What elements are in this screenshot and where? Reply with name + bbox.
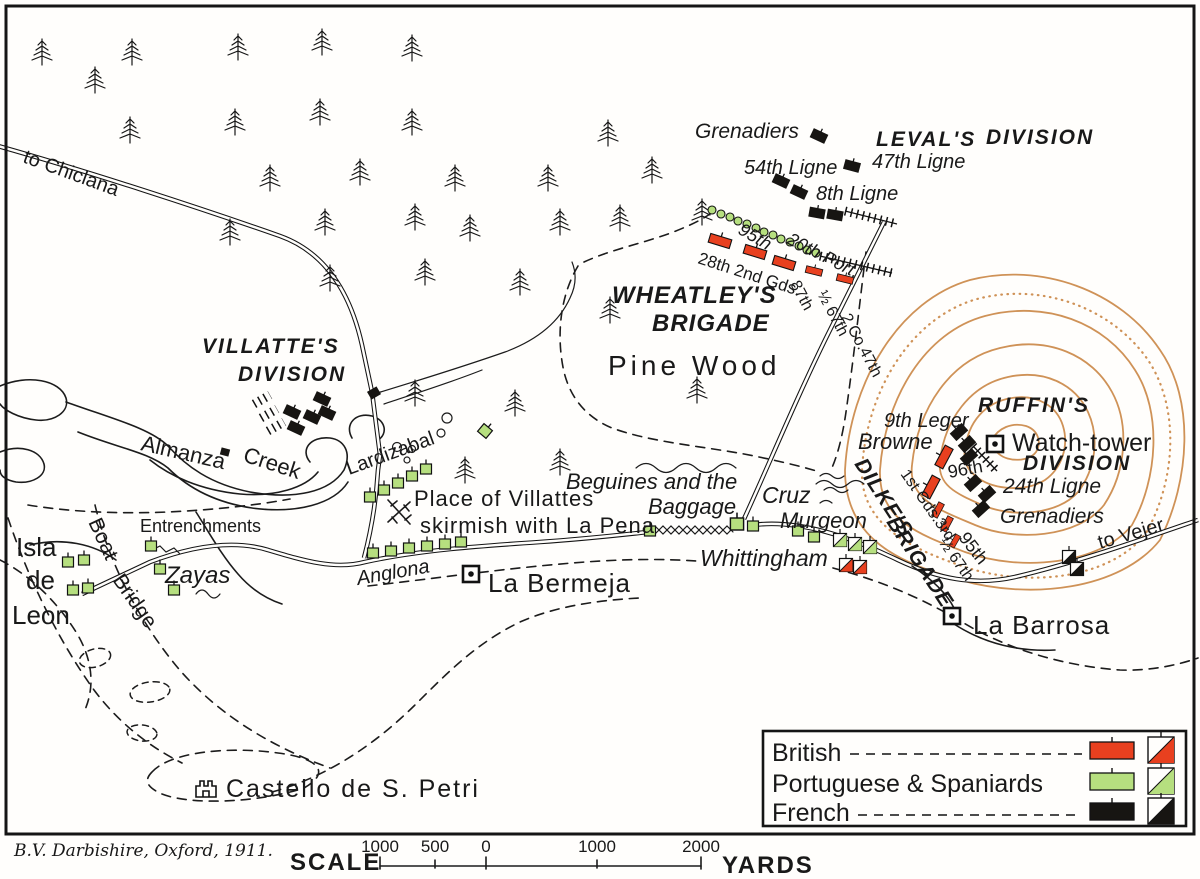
label-la-bermeja: La Bermeja [488, 568, 631, 598]
legend-label-british: British [772, 739, 841, 767]
legend: British Portuguese & Spaniards French [763, 731, 1186, 827]
la-bermeja-building-icon [463, 566, 479, 582]
scale-tick-1: 500 [421, 837, 449, 856]
scale-tick-0: 1000 [361, 837, 399, 856]
label-ruffins-division: DIVISION [1023, 452, 1131, 475]
baggage-train-chain [655, 526, 733, 534]
label-24th-ligne: 24th Ligne [1002, 475, 1101, 498]
scale-tick-2: 0 [481, 837, 490, 856]
watch-tower-icon [987, 436, 1003, 452]
label-almanza: Almanza [139, 431, 229, 475]
label-beguines-line2: Baggage [648, 494, 736, 519]
scale-bar-ticks [380, 857, 701, 869]
label-villattes: VILLATTE'S [202, 335, 340, 358]
label-isla: Isla [16, 532, 57, 562]
label-whittingham: Whittingham [700, 545, 828, 571]
label-pine-wood: Pine Wood [608, 350, 780, 381]
legend-label-french: French [772, 799, 850, 827]
label-creek: Creek [240, 442, 304, 484]
label-castello: Castello de S. Petri [226, 775, 480, 803]
legend-swatch-british-infantry [1090, 742, 1134, 759]
label-browne: Browne [858, 429, 933, 454]
label-ruffins: RUFFIN'S [978, 394, 1090, 417]
label-to-chiclana: to Chiclana [20, 146, 122, 201]
label-levals: LEVAL'S [876, 128, 976, 151]
label-47th-ligne: 47th Ligne [872, 151, 965, 173]
label-zayas: Zayas [164, 562, 230, 589]
crossed-swords-icon [388, 500, 411, 524]
castle-icon [196, 781, 216, 797]
label-54th-ligne: 54th Ligne [744, 157, 837, 179]
map-canvas: to Chiclana Grenadiers LEVAL'S DIVISION … [0, 0, 1200, 879]
label-to-vejer: to Vejer [1095, 514, 1167, 554]
label-entrenchments: Entrenchments [140, 516, 261, 536]
scale-unit: YARDS [722, 852, 814, 879]
label-wheatleys: WHEATLEY'S [612, 282, 777, 309]
label-9th-leger: 9th Leger [884, 410, 970, 432]
label-grenadiers-ruffin: Grenadiers [1000, 505, 1104, 528]
legend-swatch-french-infantry [1090, 803, 1134, 820]
legend-swatch-french-cavalry [1148, 793, 1174, 824]
legend-label-portuguese: Portuguese & Spaniards [772, 770, 1043, 798]
pine-trees-group [32, 29, 712, 483]
label-levals-division: DIVISION [986, 126, 1094, 149]
label-2co-47th: 2 Co.47th [837, 311, 885, 380]
label-wheatleys-brigade: BRIGADE [652, 310, 770, 337]
legend-swatch-portuguese-cavalry [1148, 763, 1174, 794]
label-cruz: Cruz [762, 482, 811, 508]
label-isla-leon: Leon [12, 600, 70, 630]
legend-swatch-british-cavalry [1148, 732, 1174, 763]
label-bridge: Bridge [108, 570, 162, 633]
label-beguines-line1: Beguines and the [566, 469, 737, 494]
label-murgeon: Murgeon [780, 508, 867, 533]
battle-map: to Chiclana Grenadiers LEVAL'S DIVISION … [0, 0, 1200, 879]
legend-swatch-portuguese-infantry [1090, 773, 1134, 790]
label-8th-ligne: 8th Ligne [816, 183, 898, 205]
label-villattes-division: DIVISION [238, 363, 346, 386]
la-barrosa-building-icon [944, 608, 960, 624]
french-units-villatte [283, 389, 337, 436]
scale-bar: SCALE YARDS 1000 500 0 1000 2000 [290, 837, 814, 879]
label-skirmish-line2: skirmish with La Pena [420, 513, 655, 538]
label-grenadiers-leval: Grenadiers [695, 120, 799, 143]
cartographer-signature: B.V. Darbishire, Oxford, 1911. [13, 841, 273, 861]
label-20th-port: 20th Port. [783, 228, 863, 282]
label-isla-de: de [26, 565, 55, 595]
label-la-barrosa: La Barrosa [973, 610, 1110, 640]
scale-tick-3: 1000 [578, 837, 616, 856]
scale-tick-4: 2000 [682, 837, 720, 856]
